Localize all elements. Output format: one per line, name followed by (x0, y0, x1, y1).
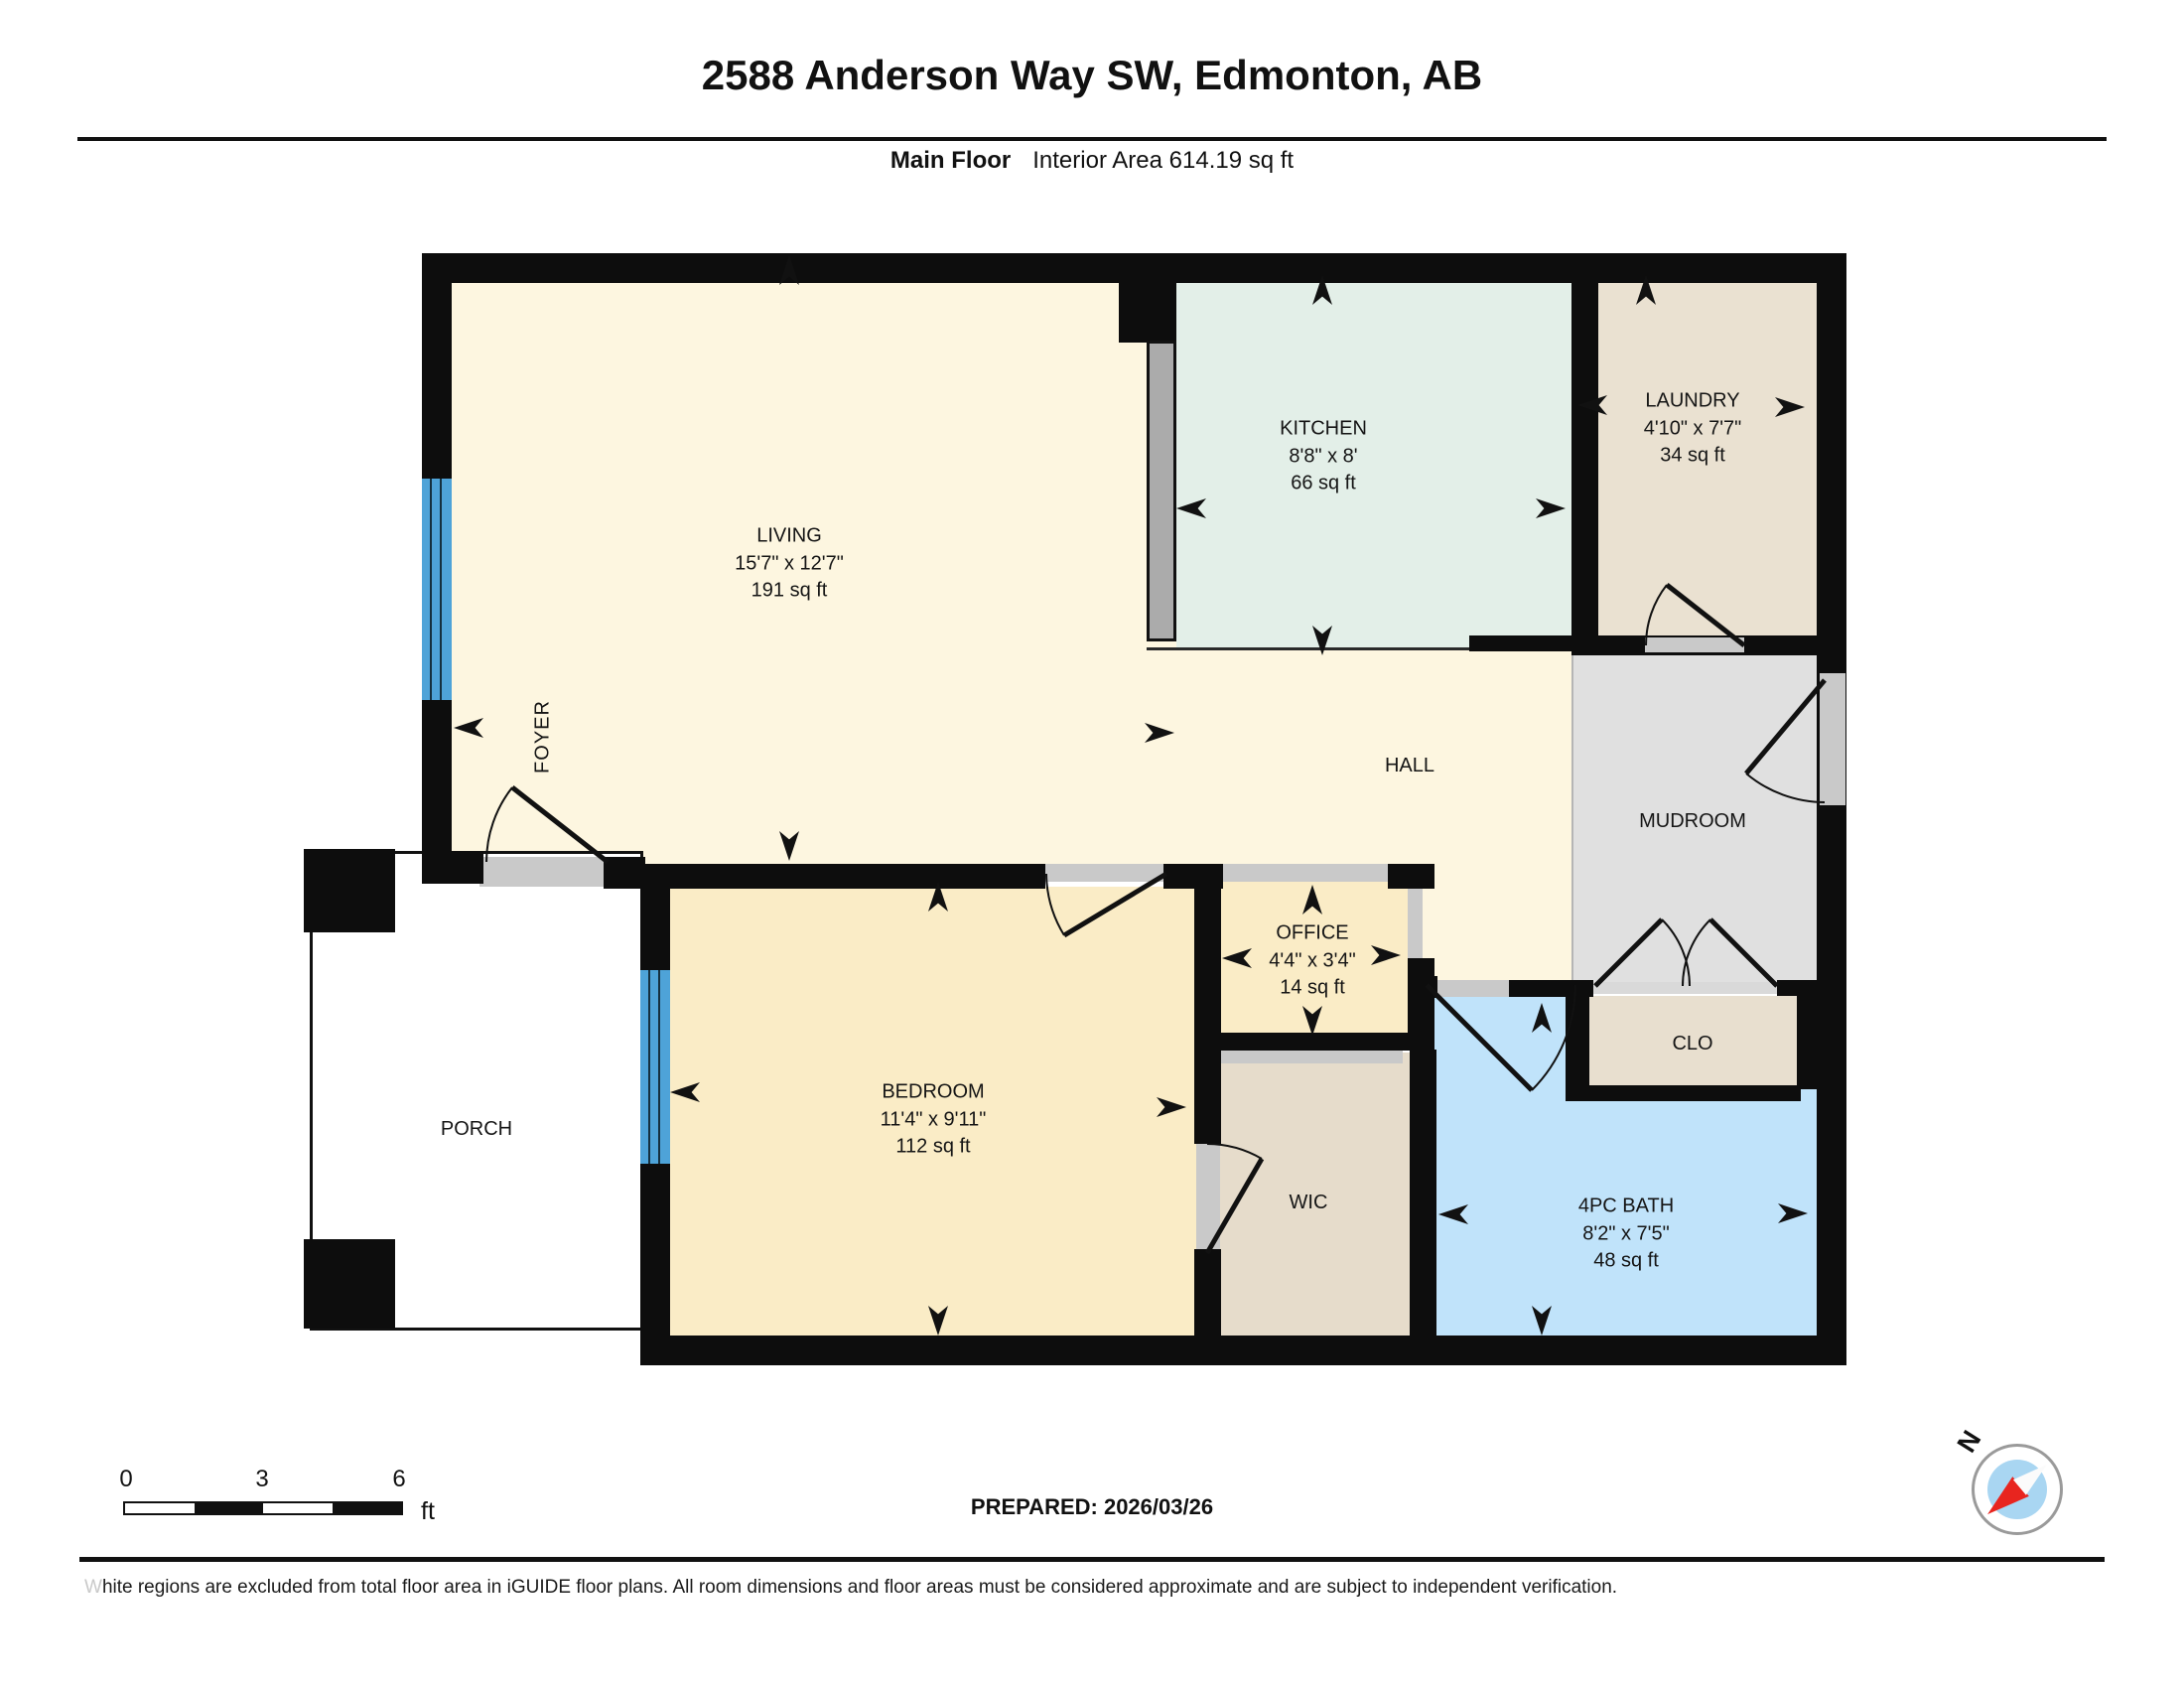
footer-divider (79, 1557, 2105, 1562)
scale-tick-6: 6 (392, 1466, 405, 1493)
foyer-door-arc (486, 787, 512, 862)
room-name: 4PC BATH (1578, 1194, 1674, 1221)
room-label-kitchen: KITCHEN 8'8" x 8' 66 sq ft (1280, 416, 1367, 498)
room-label-office: OFFICE 4'4" x 3'4" 14 sq ft (1269, 920, 1355, 1003)
room-dims: 15'7" x 12'7" (735, 550, 844, 578)
room-label-porch: PORCH (441, 1116, 512, 1144)
mudroom-left-door-leaf (1595, 919, 1662, 986)
room-name: BEDROOM (881, 1079, 987, 1107)
wic-door-arc (1207, 1144, 1262, 1159)
laundry-door-arc (1646, 585, 1667, 645)
room-dims: 4'4" x 3'4" (1269, 947, 1355, 975)
room-area: 191 sq ft (735, 578, 844, 606)
room-dims: 8'8" x 8' (1280, 443, 1367, 471)
disclaimer-first-letter: W (84, 1577, 102, 1598)
room-label-living: LIVING 15'7" x 12'7" 191 sq ft (735, 523, 844, 606)
compass-icon (1972, 1444, 2063, 1535)
mudroom-left-door-arc (1662, 919, 1690, 986)
mudroom-right-door-arc (1683, 919, 1710, 986)
room-area: 34 sq ft (1644, 443, 1742, 471)
room-label-foyer: FOYER (532, 700, 555, 774)
entry-door-leaf (1746, 680, 1825, 774)
room-area: 66 sq ft (1280, 471, 1367, 498)
bedroom-door-leaf (1064, 874, 1166, 935)
scale-tick-3: 3 (255, 1466, 268, 1493)
room-area: 48 sq ft (1578, 1248, 1674, 1276)
room-label-closet: CLO (1672, 1031, 1712, 1058)
room-area: 14 sq ft (1269, 975, 1355, 1003)
wic-door-leaf (1207, 1159, 1262, 1253)
room-name: KITCHEN (1280, 416, 1367, 444)
room-label-bath: 4PC BATH 8'2" x 7'5" 48 sq ft (1578, 1194, 1674, 1276)
room-name: LAUNDRY (1644, 388, 1742, 416)
prepared-date-label: PREPARED: 2026/03/26 (0, 1494, 2184, 1520)
room-label-mudroom: MUDROOM (1639, 808, 1746, 836)
bath-door-leaf (1427, 985, 1532, 1090)
room-dims: 4'10" x 7'7" (1644, 415, 1742, 443)
room-label-hall: HALL (1385, 753, 1434, 780)
room-dims: 8'2" x 7'5" (1578, 1220, 1674, 1248)
room-area: 112 sq ft (881, 1134, 987, 1162)
room-label-laundry: LAUNDRY 4'10" x 7'7" 34 sq ft (1644, 388, 1742, 471)
room-dims: 11'4" x 9'11" (881, 1106, 987, 1134)
room-label-wic: WIC (1290, 1190, 1328, 1217)
floorplan-page: { "header": { "title": "2588 Anderson Wa… (0, 0, 2184, 1688)
bath-door-arc (1532, 985, 1575, 1090)
bedroom-door-arc (1046, 874, 1064, 935)
disclaimer-body: hite regions are excluded from total flo… (102, 1577, 1617, 1598)
scale-tick-0: 0 (119, 1466, 132, 1493)
room-name: LIVING (735, 523, 844, 551)
entry-door-arc (1746, 774, 1825, 802)
door-swings-layer (0, 0, 2184, 1688)
mudroom-right-door-leaf (1710, 919, 1777, 986)
room-label-bedroom: BEDROOM 11'4" x 9'11" 112 sq ft (881, 1079, 987, 1162)
disclaimer-text: White regions are excluded from total fl… (84, 1577, 1617, 1599)
room-name: OFFICE (1269, 920, 1355, 948)
foyer-door-leaf (512, 787, 608, 862)
laundry-door-leaf (1667, 585, 1744, 645)
